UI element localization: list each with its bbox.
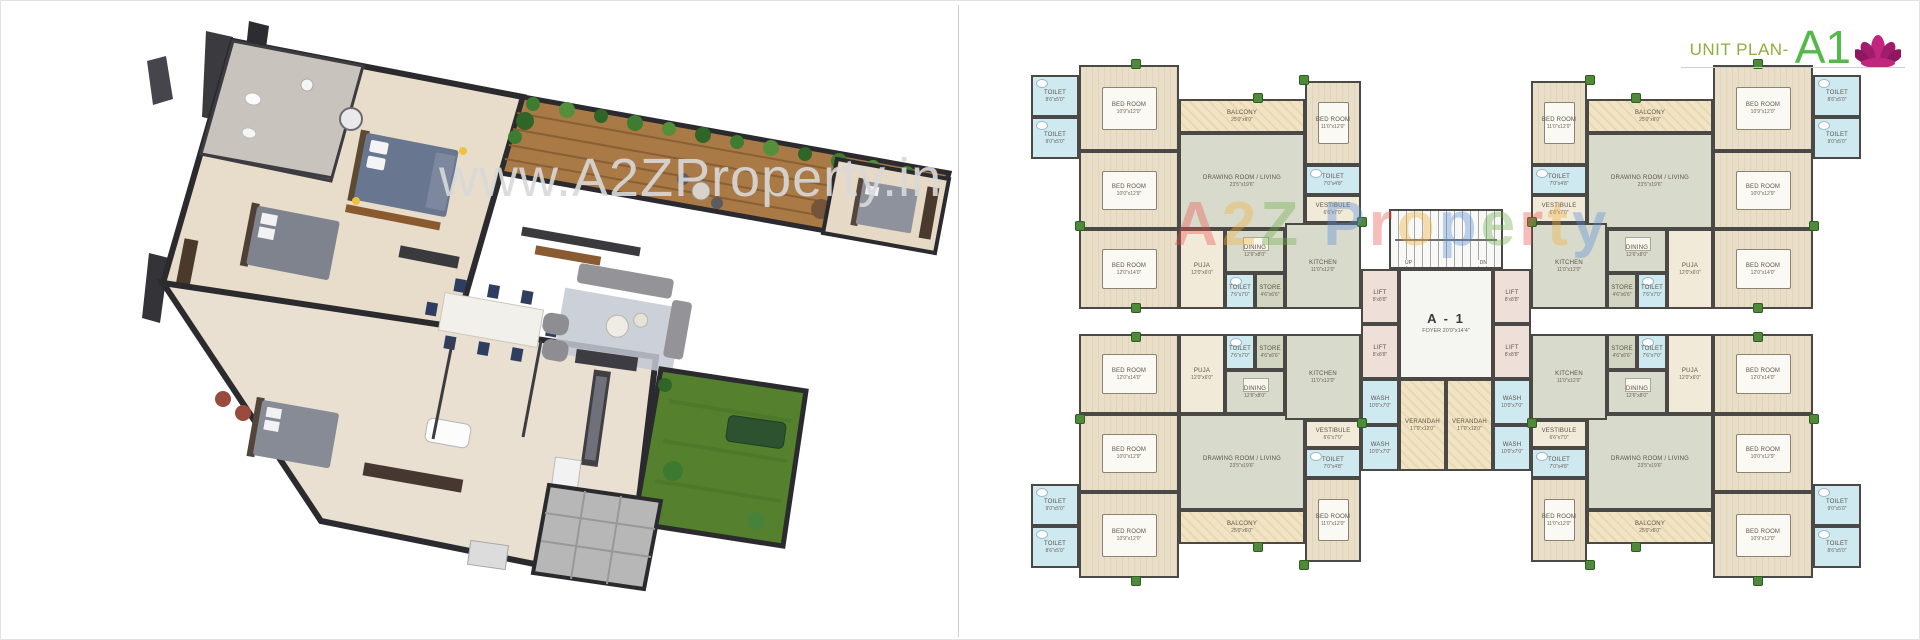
plant-icon — [1357, 418, 1367, 428]
room-toilet-b-bottom-right: TOILET9'0"x5'0" — [1813, 484, 1861, 526]
room-bedroom-4-top-right: BED ROOM11'0"x12'0" — [1531, 81, 1587, 165]
room-vestibule-bottom-left: VESTIBULE6'6"x7'0" — [1305, 420, 1361, 448]
plant-icon — [1253, 542, 1263, 552]
room-bedroom-2-bottom-left: BED ROOM10'0"x12'9" — [1079, 414, 1179, 492]
plant-icon — [1527, 418, 1537, 428]
room-vestibule-bottom-right: VESTIBULE6'6"x7'0" — [1531, 420, 1587, 448]
plant-icon — [1075, 414, 1085, 424]
plant-icon — [1131, 332, 1141, 342]
room-wash-2: WASH10'0"x7'0" — [1361, 425, 1399, 471]
room-foyer: A - 1FOYER 20'0"x14'4" — [1399, 269, 1493, 379]
room-bedroom-1-bottom-left: BED ROOM10'9"x12'0" — [1079, 492, 1179, 578]
room-dining-top-right: DINING12'6"x8'0" — [1607, 229, 1667, 273]
plant-icon — [1131, 576, 1141, 586]
room-bedroom-4-bottom-left: BED ROOM11'0"x12'0" — [1305, 478, 1361, 562]
plant-icon — [1631, 542, 1641, 552]
plant-icon — [1299, 75, 1309, 85]
plan-watermark-letter: p — [1439, 190, 1481, 259]
plan-watermark-letter: e — [1481, 190, 1519, 259]
room-bedroom-3-bottom-right: BED ROOM12'0"x14'0" — [1713, 334, 1813, 414]
header-underline — [1681, 67, 1905, 68]
room-lift-3: LIFT8'x8'8" — [1493, 269, 1531, 324]
room-toilet-d-bottom-left: TOILET7'6"x7'0" — [1225, 334, 1255, 370]
plan-watermark-letter: Z — [1260, 190, 1302, 259]
room-puja-bottom-left: PUJA12'0"x6'0" — [1179, 334, 1225, 414]
plant-icon — [1809, 221, 1819, 231]
plant-icon — [1585, 560, 1595, 570]
room-balcony-bottom-left: BALCONY25'0"x6'0" — [1179, 510, 1305, 544]
room-bedroom-1-top-right: BED ROOM10'9"x12'0" — [1713, 65, 1813, 151]
room-toilet-a-bottom-right: TOILET8'6"x5'0" — [1813, 526, 1861, 568]
floorplan-sheet: www.A2ZProperty.in UNIT PLAN- A1 TOILET8… — [0, 0, 1920, 640]
room-store-top-left: STORE4'6"x6'6" — [1255, 273, 1285, 309]
room-kitchen-bottom-left: KITCHEN11'0"x12'0" — [1285, 334, 1361, 420]
plan-watermark-letter: y — [1572, 190, 1610, 259]
plan-watermark-letter: t — [1547, 190, 1572, 259]
room-toilet-a-bottom-left: TOILET8'6"x5'0" — [1031, 526, 1079, 568]
room-living-bottom-left: DRAWING ROOM / LIVING23'5"x19'6" — [1179, 414, 1305, 510]
plant-icon — [1809, 414, 1819, 424]
room-bedroom-3-top-right: BED ROOM12'0"x14'0" — [1713, 229, 1813, 309]
plan-watermark-letter: 2 — [1222, 190, 1260, 259]
room-toilet-a-top-left: TOILET8'6"x5'0" — [1031, 75, 1079, 117]
plant-icon — [1131, 59, 1141, 69]
plant-icon — [1585, 75, 1595, 85]
plant-icon — [1075, 221, 1085, 231]
room-lift-2: LIFT8'x8'8" — [1361, 324, 1399, 379]
room-store-top-right: STORE4'6"x6'6" — [1607, 273, 1637, 309]
plant-icon — [1253, 93, 1263, 103]
plan-watermark-letter: r — [1369, 190, 1397, 259]
unit-plan-header: UNIT PLAN- A1 — [1690, 11, 1901, 69]
photo-watermark: www.A2ZProperty.in — [439, 147, 942, 209]
plan-watermark: A2Z Property — [1173, 189, 1610, 260]
plan-watermark-letter: A — [1173, 190, 1222, 259]
room-verandah-2: VERANDAH17'0"x12'0" — [1446, 379, 1493, 471]
room-bedroom-2-top-left: BED ROOM10'0"x12'9" — [1079, 151, 1179, 229]
plan-watermark-letter: o — [1397, 190, 1439, 259]
room-toilet-b-top-right: TOILET9'0"x5'0" — [1813, 117, 1861, 159]
room-bedroom-3-top-left: BED ROOM12'0"x14'0" — [1079, 229, 1179, 309]
room-bedroom-3-bottom-left: BED ROOM12'0"x14'0" — [1079, 334, 1179, 414]
lotus-icon — [1855, 27, 1901, 69]
plant-icon — [1299, 560, 1309, 570]
room-toilet-d-top-right: TOILET7'6"x7'0" — [1637, 273, 1667, 309]
plant-icon — [1753, 332, 1763, 342]
room-store-bottom-right: STORE4'6"x6'6" — [1607, 334, 1637, 370]
room-dining-bottom-left: DINING12'6"x8'0" — [1225, 370, 1285, 414]
room-bedroom-4-top-left: BED ROOM11'0"x12'0" — [1305, 81, 1361, 165]
room-puja-top-right: PUJA12'0"x6'0" — [1667, 229, 1713, 309]
room-bedroom-1-bottom-right: BED ROOM10'9"x12'0" — [1713, 492, 1813, 578]
room-lift-1: LIFT8'x8'8" — [1361, 269, 1399, 324]
plan-watermark-letter: r — [1519, 190, 1547, 259]
room-bedroom-4-bottom-right: BED ROOM11'0"x12'0" — [1531, 478, 1587, 562]
plant-icon — [1631, 93, 1641, 103]
plant-icon — [1753, 576, 1763, 586]
unit-code: A1 — [1795, 25, 1851, 69]
room-puja-bottom-right: PUJA12'0"x6'0" — [1667, 334, 1713, 414]
room-kitchen-bottom-right: KITCHEN11'0"x12'0" — [1531, 334, 1607, 420]
room-toilet-d-top-left: TOILET7'6"x7'0" — [1225, 273, 1255, 309]
plan-watermark-letter — [1302, 190, 1323, 259]
plant-icon — [1131, 303, 1141, 313]
turf-terrace — [634, 369, 806, 546]
room-bedroom-1-top-left: BED ROOM10'9"x12'0" — [1079, 65, 1179, 151]
room-dining-bottom-right: DINING12'6"x8'0" — [1607, 370, 1667, 414]
unit-plan-label: UNIT PLAN- — [1690, 40, 1789, 69]
room-balcony-top-left: BALCONY25'0"x6'0" — [1179, 99, 1305, 133]
room-bedroom-2-bottom-right: BED ROOM10'0"x12'9" — [1713, 414, 1813, 492]
isometric-render — [1, 1, 959, 640]
room-balcony-bottom-right: BALCONY25'0"x6'0" — [1587, 510, 1713, 544]
room-toilet-d-bottom-right: TOILET7'6"x7'0" — [1637, 334, 1667, 370]
plant-icon — [1753, 303, 1763, 313]
room-balcony-top-right: BALCONY25'0"x6'0" — [1587, 99, 1713, 133]
room-wash-3: WASH10'0"x7'0" — [1493, 379, 1531, 425]
room-store-bottom-left: STORE4'6"x6'6" — [1255, 334, 1285, 370]
floor-plan: TOILET8'6"x5'0"TOILET9'0"x5'0"BED ROOM10… — [1031, 59, 1861, 584]
room-toilet-a-top-right: TOILET8'6"x5'0" — [1813, 75, 1861, 117]
room-lift-4: LIFT8'x8'8" — [1493, 324, 1531, 379]
room-verandah-1: VERANDAH17'0"x12'0" — [1399, 379, 1446, 471]
room-toilet-c-bottom-right: TOILET7'0"x4'8" — [1531, 448, 1587, 478]
room-living-bottom-right: DRAWING ROOM / LIVING23'5"x19'6" — [1587, 414, 1713, 510]
room-toilet-b-bottom-left: TOILET9'0"x5'0" — [1031, 484, 1079, 526]
plan-watermark-letter: P — [1323, 190, 1368, 259]
room-wash-4: WASH10'0"x7'0" — [1493, 425, 1531, 471]
room-toilet-b-top-left: TOILET9'0"x5'0" — [1031, 117, 1079, 159]
room-toilet-c-bottom-left: TOILET7'0"x4'8" — [1305, 448, 1361, 478]
room-bedroom-2-top-right: BED ROOM10'0"x12'9" — [1713, 151, 1813, 229]
